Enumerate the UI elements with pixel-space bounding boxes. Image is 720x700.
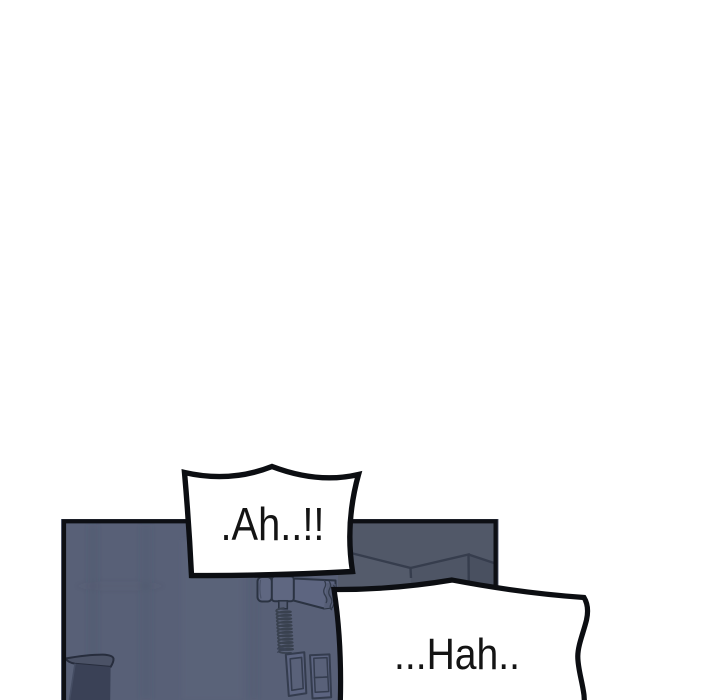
svg-text:.Ah..!!: .Ah..!! bbox=[221, 498, 325, 550]
svg-text:...Hah..: ...Hah.. bbox=[394, 631, 520, 679]
